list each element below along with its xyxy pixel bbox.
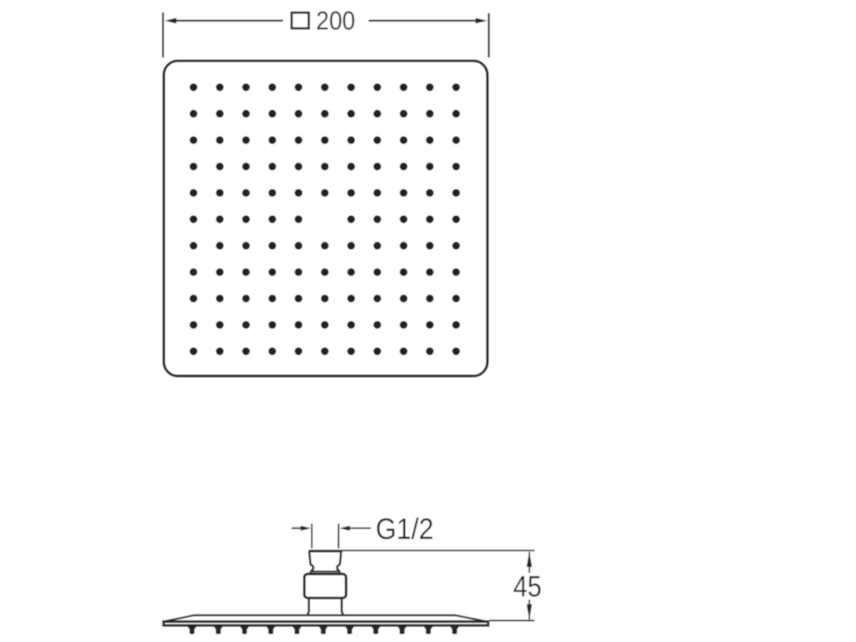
- svg-text:G1/2: G1/2: [376, 513, 434, 546]
- svg-text:200: 200: [316, 5, 355, 35]
- svg-text:45: 45: [513, 571, 542, 604]
